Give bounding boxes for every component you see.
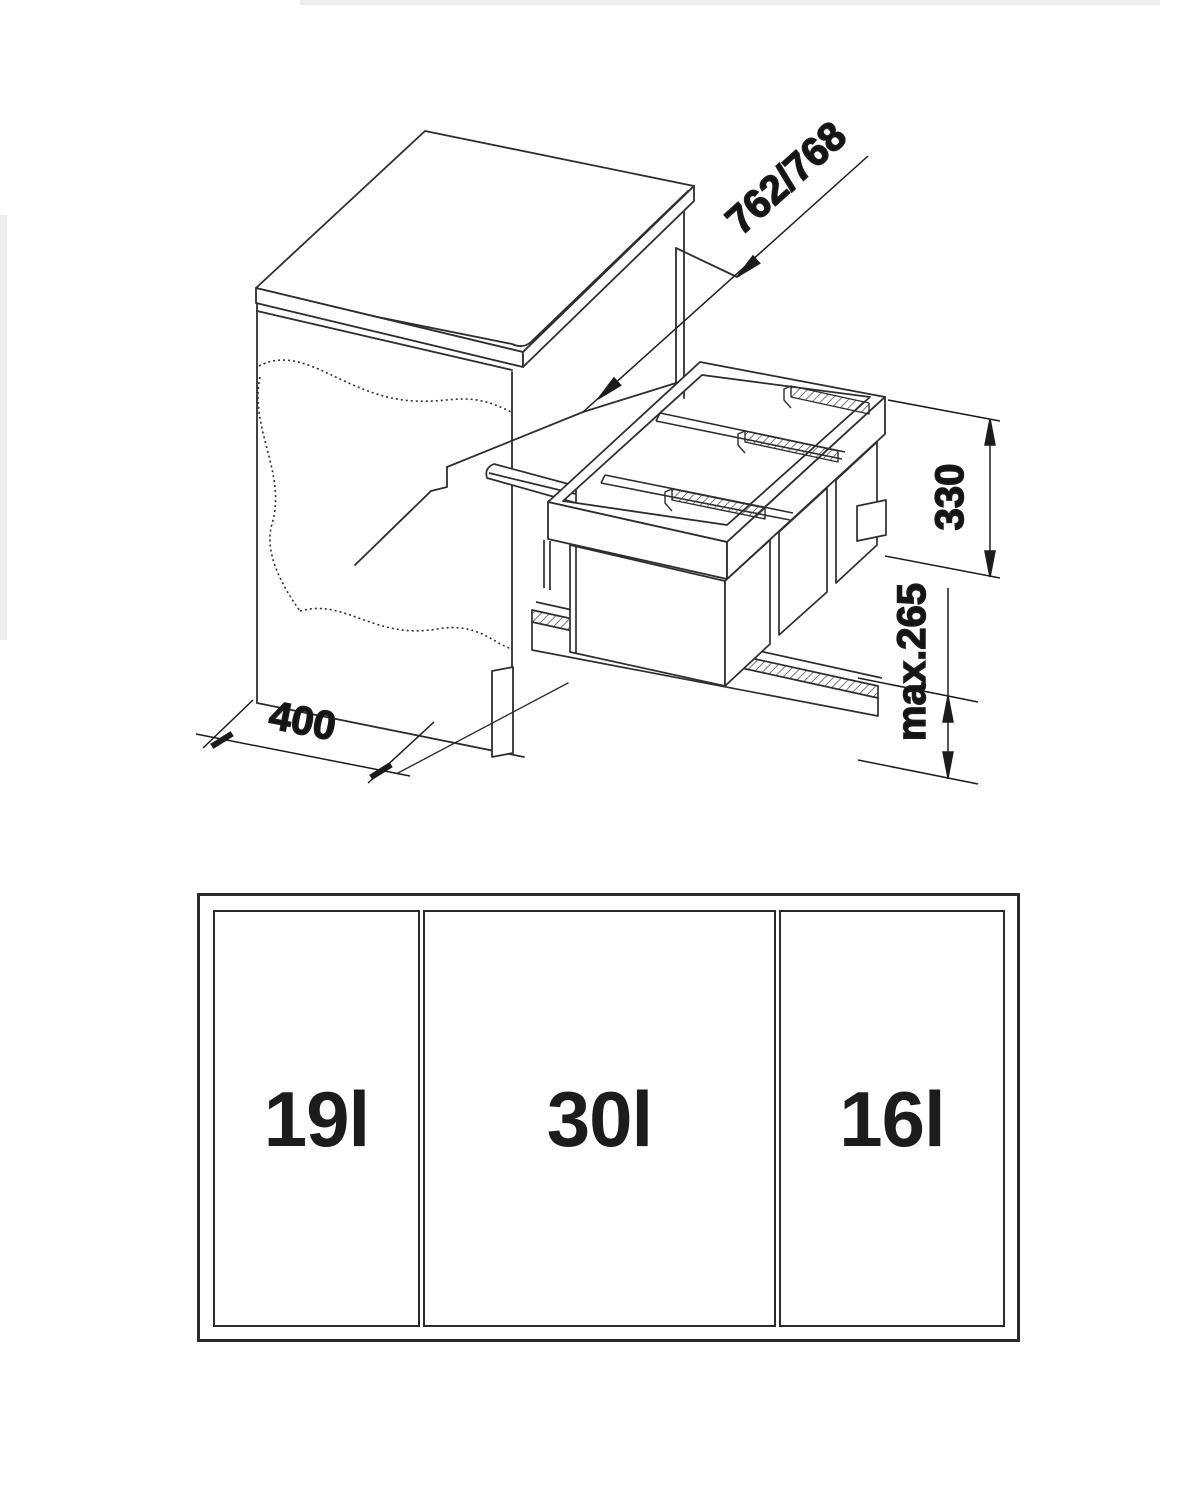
width-dimension-label: 400 [266,693,340,749]
depth-dimension-label: 762/768 [718,114,855,243]
cabinet-outline [256,131,737,773]
front-stile [492,667,513,757]
dimension-height: 330 [885,400,1000,578]
bin-cell-middle: 30l [423,910,776,1327]
pullout-frame [548,362,885,579]
technical-diagram-page: 762/768 330 max.265 [0,0,1200,1488]
torn-edge-left [258,377,300,611]
max-height-dimension-label: max.265 [890,583,934,741]
height-dimension-label: 330 [928,464,972,531]
dimension-width: 400 [196,693,434,783]
interior-back-top-edge [676,248,737,277]
plan-view-outer-box: 19l 30l 16l [197,893,1020,1342]
side-bracket [857,500,886,541]
bin-volume-label: 19l [264,1080,369,1158]
torn-edge-bottom [300,608,512,649]
handle-middle-hook [738,431,745,453]
interior-left-wall-step [355,467,447,565]
cutaway-torn-edges [258,360,512,649]
frame-corner-post [544,540,550,590]
handle-back-hook [784,386,791,408]
handle-front-hook [665,489,672,511]
bin-cell-left: 19l [213,910,420,1327]
torn-edge-top [259,360,511,412]
bin-volume-label: 30l [547,1080,652,1158]
dimension-max-height: max.265 [858,583,978,784]
bin-cell-right: 16l [779,910,1005,1327]
bin-volume-label: 16l [839,1080,944,1158]
isometric-cabinet-drawing: 762/768 330 max.265 [0,0,1200,870]
floor-extension-line [398,683,568,773]
